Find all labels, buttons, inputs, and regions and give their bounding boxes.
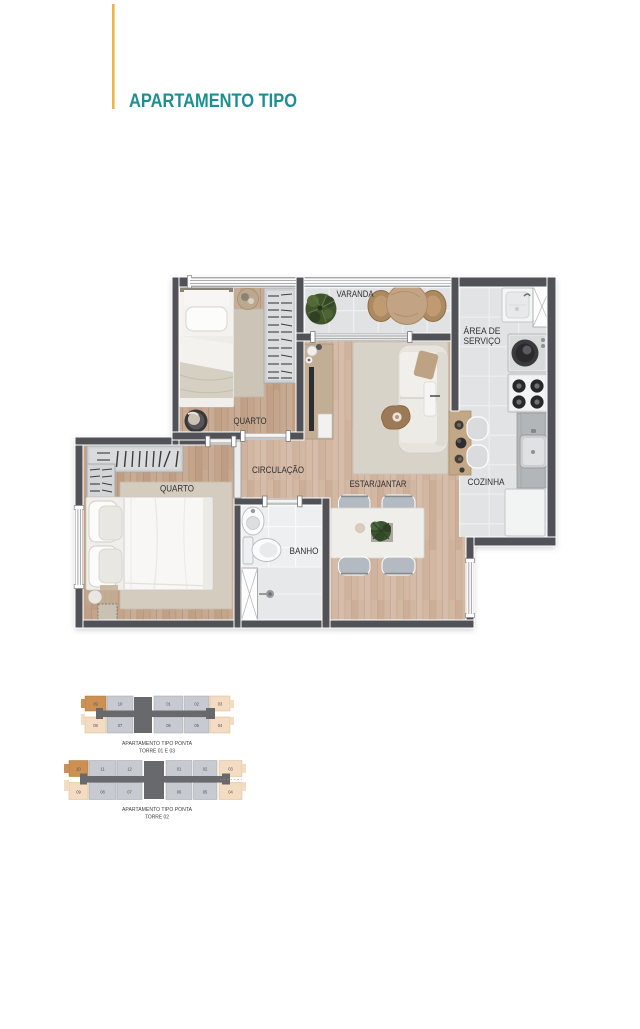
svg-text:APARTAMENTO TIPO: APARTAMENTO TIPO [129,91,297,112]
svg-text:ESTAR/JANTAR: ESTAR/JANTAR [350,479,407,489]
svg-text:SERVIÇO: SERVIÇO [464,336,501,346]
svg-text:02: 02 [203,766,208,771]
svg-text:09: 09 [76,790,81,795]
svg-text:VARANDA: VARANDA [337,289,374,299]
svg-text:04: 04 [228,790,233,795]
svg-text:09: 09 [93,701,98,706]
svg-text:02: 02 [194,701,199,706]
svg-text:03: 03 [228,766,233,771]
svg-text:03: 03 [218,701,223,706]
svg-text:10: 10 [118,701,123,706]
svg-text:TORRE 01 E 03: TORRE 01 E 03 [139,749,175,755]
svg-text:QUARTO: QUARTO [234,416,267,426]
svg-text:TORRE 02: TORRE 02 [145,815,169,821]
svg-text:10: 10 [76,766,81,771]
svg-text:05: 05 [203,790,208,795]
svg-text:07: 07 [127,790,132,795]
svg-text:04: 04 [218,723,223,728]
svg-text:05: 05 [194,723,199,728]
svg-text:07: 07 [118,723,123,728]
svg-text:12: 12 [127,766,132,771]
svg-text:QUARTO: QUARTO [160,484,194,494]
svg-text:06: 06 [166,723,171,728]
svg-text:COZINHA: COZINHA [468,477,505,487]
svg-text:08: 08 [93,723,98,728]
svg-text:01: 01 [177,766,182,771]
svg-text:BANHO: BANHO [290,546,319,556]
svg-text:11: 11 [100,766,105,771]
svg-text:01: 01 [166,701,171,706]
svg-text:08: 08 [100,790,105,795]
svg-text:06: 06 [177,790,182,795]
svg-text:CIRCULAÇÃO: CIRCULAÇÃO [252,465,304,475]
svg-text:APARTAMENTO TIPO PONTA: APARTAMENTO TIPO PONTA [122,807,193,813]
svg-text:ÁREA DE: ÁREA DE [464,326,501,336]
svg-text:APARTAMENTO TIPO PONTA: APARTAMENTO TIPO PONTA [122,741,193,747]
